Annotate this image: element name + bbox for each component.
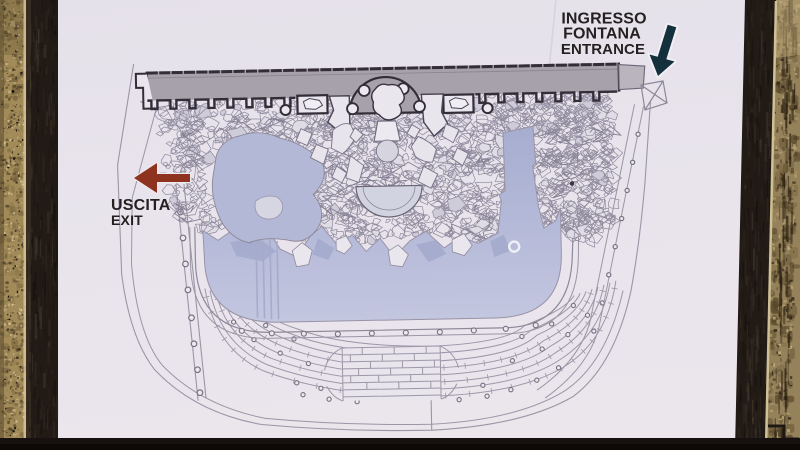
svg-text:ENTRANCE: ENTRANCE: [561, 41, 645, 58]
svg-text:FONTANA: FONTANA: [563, 26, 641, 43]
svg-text:EXIT: EXIT: [111, 212, 143, 228]
